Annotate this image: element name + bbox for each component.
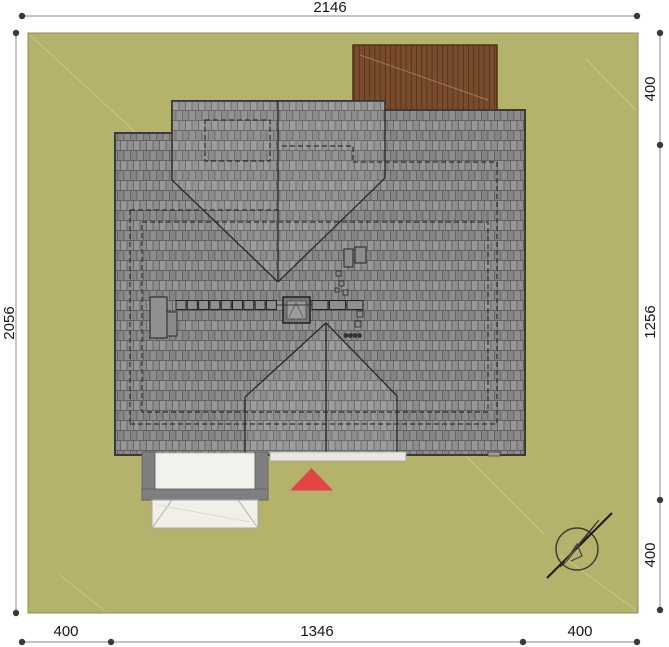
dimension-bottom-label-1: 400 (53, 623, 78, 640)
entrance-path (270, 452, 406, 461)
entrance-porch (142, 452, 268, 528)
chimney (150, 297, 167, 338)
dimension-right-label-2: 1256 (642, 305, 659, 338)
dimension-left-label: 2056 (1, 306, 18, 339)
skylight (283, 297, 310, 323)
site-plan-drawing: 2146 2056 400 1256 400 400 1 (0, 0, 669, 647)
porch-wall-front (142, 489, 268, 500)
dimension-top: 2146 (19, 0, 640, 19)
dimension-left: 2056 (1, 30, 19, 616)
dimension-bottom-label-2: 1346 (300, 623, 333, 640)
eave-notch (488, 452, 500, 456)
main-roof (115, 101, 525, 456)
dimension-top-label: 2146 (313, 0, 346, 16)
dimension-right-label-1: 400 (642, 76, 659, 101)
chimney-flue (167, 312, 177, 336)
porch-steps (152, 500, 258, 528)
roof-walkway-snow-guards (176, 301, 364, 310)
porch-floor (155, 453, 255, 489)
dimension-right-label-3: 400 (642, 542, 659, 567)
dimension-bottom-label-3: 400 (567, 623, 592, 640)
dimension-right: 400 1256 400 (642, 30, 663, 613)
site-plan-canvas: 2146 2056 400 1256 400 400 1 (0, 0, 669, 647)
dimension-bottom: 400 1346 400 (19, 623, 640, 645)
